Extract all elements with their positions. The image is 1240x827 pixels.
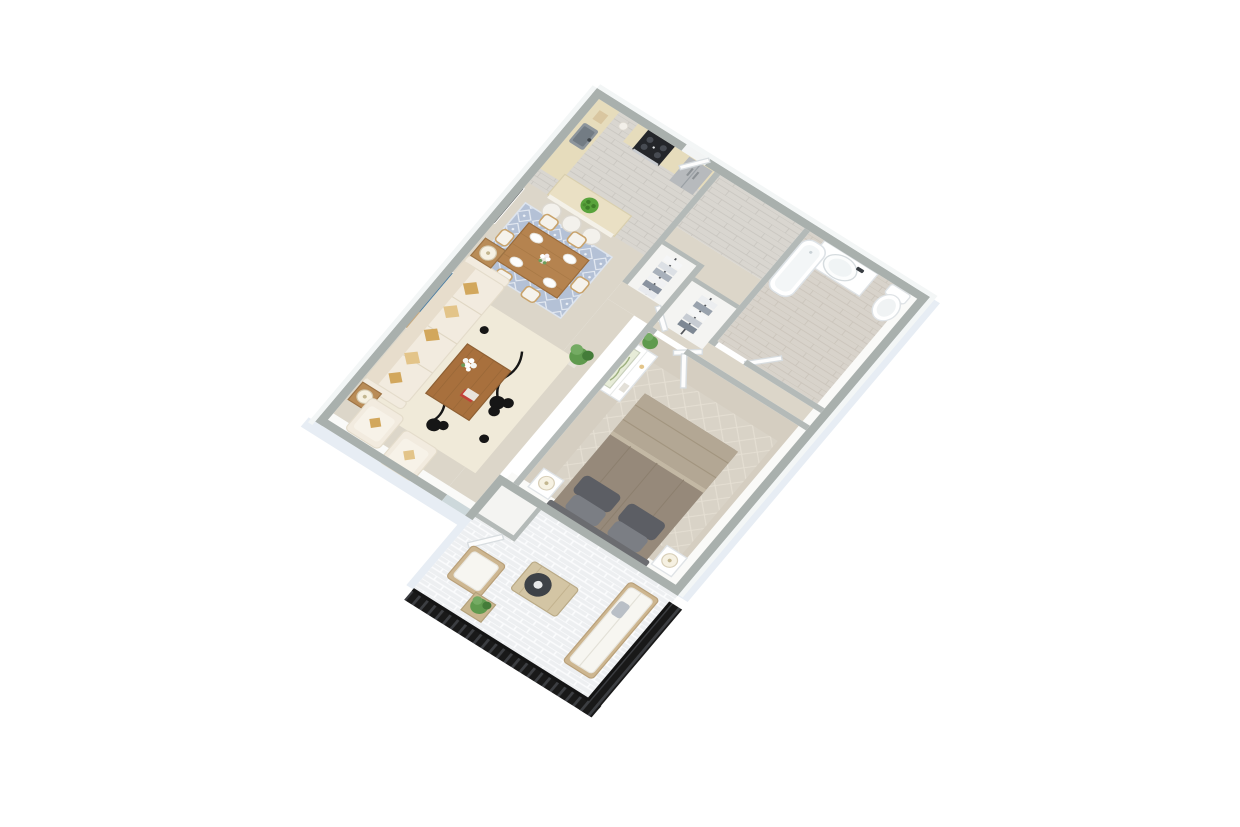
floor-plan-svg xyxy=(0,0,1240,827)
bedroom-door xyxy=(681,354,687,388)
building xyxy=(228,64,958,725)
floor-plan-render xyxy=(0,0,1240,827)
